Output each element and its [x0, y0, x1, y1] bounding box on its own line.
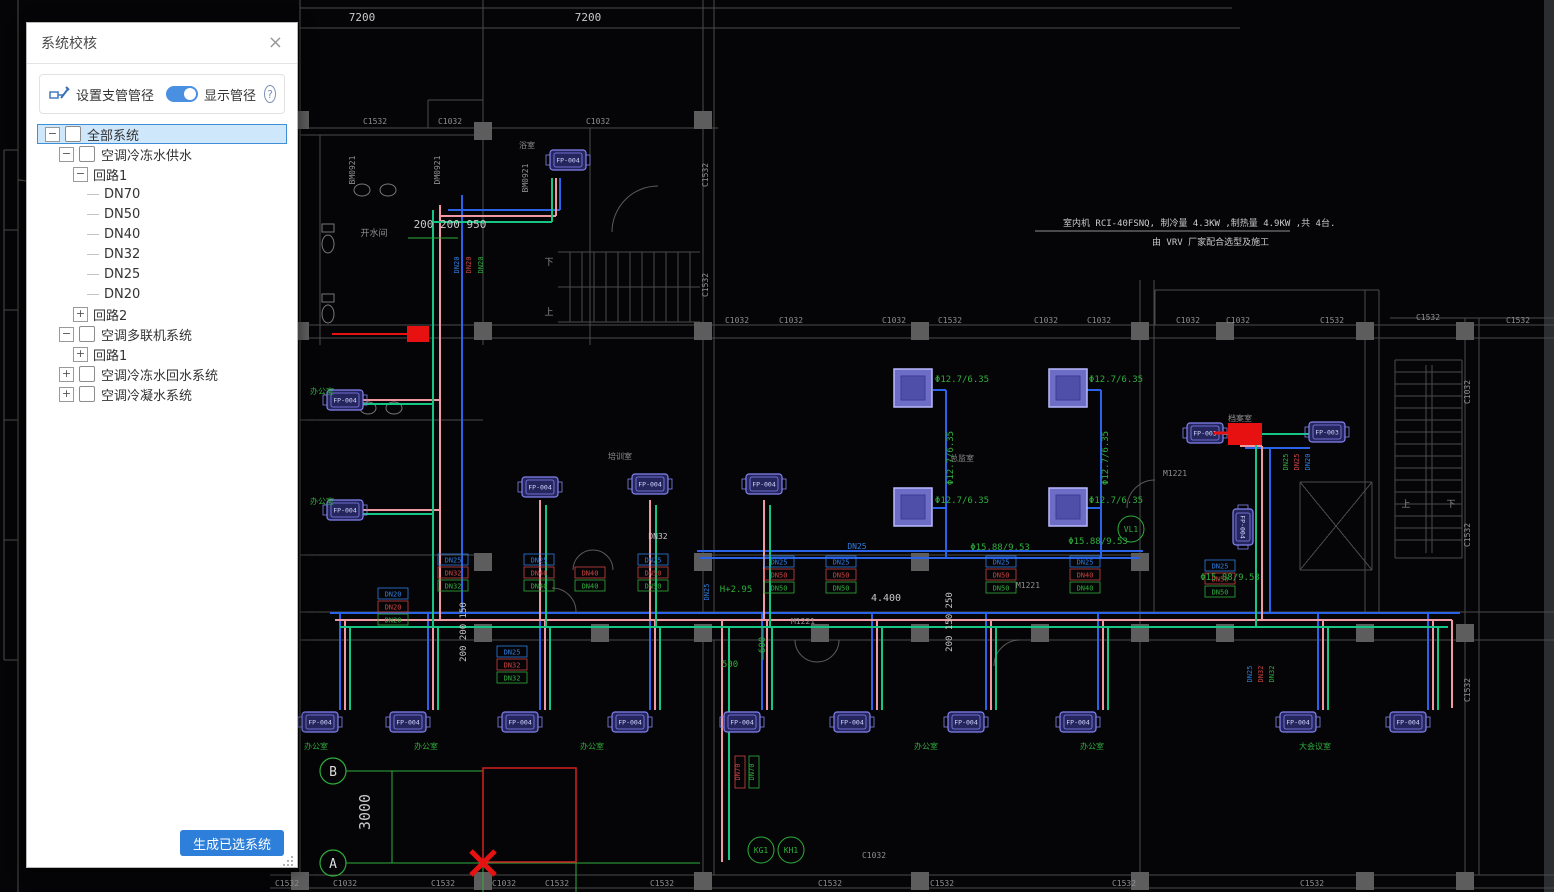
dn-label-vertical: DN32: [1257, 666, 1265, 683]
cad-label: Φ12.7/6.35: [1101, 431, 1111, 485]
fan-coil-unit-label: FP-004: [1239, 515, 1247, 539]
tree-item-空调冷冻水回水系统[interactable]: +空调冷冻水回水系统: [37, 364, 287, 384]
tree-item-label: 全部系统: [87, 125, 139, 144]
app-window: BAKG1KH1VL1FP-004FP-004FP-004FP-004FP-00…: [0, 0, 1554, 892]
cad-label: 200 150 250: [945, 592, 955, 652]
fan-coil-unit-label: FP-004: [396, 719, 420, 727]
cad-label: 办公室: [580, 741, 604, 751]
circle-tag-label: KH1: [784, 846, 799, 855]
cad-label: 下: [1446, 500, 1455, 510]
fan-coil-unit-label: FP-004: [308, 719, 332, 727]
cad-label: Φ15.88/9.53: [1068, 537, 1128, 547]
tree-item-DN70[interactable]: DN70: [37, 184, 287, 204]
fan-coil-unit-label: FP-003: [1315, 429, 1339, 437]
cad-label: C1032: [1176, 316, 1200, 325]
dn-label: DN40: [582, 570, 599, 578]
dn-label: DN40: [582, 583, 599, 591]
cad-label: C1032: [333, 879, 357, 888]
tree-checkbox[interactable]: [65, 126, 81, 142]
cassette-unit[interactable]: [1049, 369, 1087, 407]
cad-label: Φ12.7/6.35: [946, 431, 956, 485]
cad-label: C1532: [938, 316, 962, 325]
tree-connector: [87, 274, 99, 275]
cad-label: C1532: [650, 879, 674, 888]
cassette-unit[interactable]: [894, 488, 932, 526]
fan-coil-unit[interactable]: FP-004: [1386, 712, 1430, 732]
tree-item-回路1[interactable]: +回路1: [37, 344, 287, 364]
circle-tag-label: KG1: [754, 846, 769, 855]
fan-coil-unit-label: FP-004: [638, 481, 662, 489]
cad-label: 浴室: [519, 140, 535, 150]
dn-label: DN50: [645, 583, 662, 591]
cad-label: C1032: [882, 316, 906, 325]
cad-label: H+2.95: [720, 585, 753, 595]
show-diameter-label: 显示管径: [204, 85, 256, 104]
fan-coil-unit-label: FP-004: [840, 719, 864, 727]
dn-label-vertical: DN20: [465, 257, 473, 274]
fan-coil-unit-label: FP-004: [954, 719, 978, 727]
fan-coil-unit[interactable]: FP-004: [546, 150, 590, 170]
cad-label: 7200: [575, 11, 602, 24]
set-branch-diameter-icon[interactable]: [48, 85, 70, 103]
cad-label: C1032: [1463, 380, 1472, 404]
fan-coil-unit-label: FP-004: [333, 397, 357, 405]
tree-checkbox[interactable]: [79, 146, 95, 162]
tree-item-label: DN25: [104, 267, 140, 282]
cad-label: C1532: [701, 163, 710, 187]
fan-coil-unit-label: FP-004: [730, 719, 754, 727]
dn-label: DN32: [445, 570, 462, 578]
dn-label: DN50: [993, 572, 1010, 580]
dn-label: DN50: [1212, 589, 1229, 597]
expand-icon[interactable]: +: [73, 307, 88, 322]
tree-item-label: 空调多联机系统: [101, 325, 192, 344]
dn-label: DN25: [1077, 559, 1094, 567]
tree-item-DN40[interactable]: DN40: [37, 224, 287, 244]
dn-label: DN50: [771, 572, 788, 580]
dn-label: DN25: [531, 557, 548, 565]
cad-label: 上: [544, 307, 553, 318]
cad-label: C1032: [1226, 316, 1250, 325]
tree-checkbox[interactable]: [79, 326, 95, 342]
tree-item-label: 空调冷冻水回水系统: [101, 365, 218, 384]
cad-label: C1032: [725, 316, 749, 325]
tree-item-DN50[interactable]: DN50: [37, 204, 287, 224]
tree-connector: [87, 194, 99, 195]
cad-label: 4.400: [871, 593, 901, 604]
cad-label: C1032: [1034, 316, 1058, 325]
cad-label: C1032: [1087, 316, 1111, 325]
fan-coil-unit[interactable]: FP-004: [1276, 712, 1320, 732]
tree-item-label: 回路2: [93, 305, 127, 324]
cad-label: 室内机 RCI-40FSNQ, 制冷量 4.3KW ,制热量 4.9KW ,共 …: [1063, 217, 1335, 229]
cad-label: 办公室: [914, 741, 938, 751]
tree-checkbox[interactable]: [79, 366, 95, 382]
cad-label: Φ12.7/6.35: [935, 496, 989, 506]
fan-coil-unit-label: FP-004: [508, 719, 532, 727]
cad-label: 办公室: [1080, 741, 1104, 751]
panel-title: 系统校核: [41, 33, 97, 53]
dn-label: DN50: [833, 572, 850, 580]
cad-label: 培训室: [608, 451, 632, 461]
cad-label: DN25: [847, 542, 866, 551]
fan-coil-unit-label: FP-003: [1193, 430, 1217, 438]
cad-label: Φ15.88/9.53: [1200, 573, 1260, 583]
cad-label: 500: [722, 660, 738, 670]
cad-label: DN32: [648, 532, 667, 541]
tree-item-label: DN40: [104, 227, 140, 242]
cad-label: C1532: [701, 273, 710, 297]
dn-label: DN25: [833, 559, 850, 567]
fan-coil-unit[interactable]: FP-004: [720, 712, 764, 732]
cad-label: C1032: [862, 851, 886, 860]
cassette-unit[interactable]: [1049, 488, 1087, 526]
cad-label: 600: [758, 637, 768, 653]
cad-label: Φ12.7/6.35: [1089, 375, 1143, 385]
dn-label: DN40: [531, 583, 548, 591]
dn-label-vertical: DN25: [1282, 454, 1290, 471]
tree-item-DN25[interactable]: DN25: [37, 264, 287, 284]
cad-label: Φ12.7/6.35: [1089, 496, 1143, 506]
expand-icon[interactable]: +: [59, 367, 74, 382]
cad-label: C1532: [363, 117, 387, 126]
collapse-icon[interactable]: −: [45, 127, 60, 142]
tree-item-label: 回路1: [93, 345, 127, 364]
tree-item-空调冷凝水系统[interactable]: +空调冷凝水系统: [37, 384, 287, 404]
close-icon[interactable]: ×: [268, 34, 283, 52]
fan-coil-unit[interactable]: FP-004: [742, 474, 786, 494]
tree-connector: [87, 294, 99, 295]
dn-label-vertical: DN25: [1293, 454, 1301, 471]
show-diameter-toggle[interactable]: [166, 86, 198, 102]
cad-label: C1032: [586, 117, 610, 126]
fan-coil-unit-label: FP-004: [618, 719, 642, 727]
tree-connector: [87, 254, 99, 255]
dn-label: DN40: [531, 570, 548, 578]
grid-bubble-label: A: [329, 857, 337, 872]
fan-coil-unit-label: FP-004: [1286, 719, 1310, 727]
cad-label: C1532: [545, 879, 569, 888]
cad-label: M1221: [1016, 581, 1040, 590]
system-check-panel: 系统校核 × 设置支管管径 显示管径 ? −全部系统−空调冷冻水供水−回路1DN…: [26, 22, 298, 868]
tree-item-label: 空调冷冻水供水: [101, 145, 192, 164]
dn-label-vertical: DN20: [453, 257, 461, 274]
collapse-icon[interactable]: −: [59, 327, 74, 342]
dn-label: DN32: [504, 675, 521, 683]
cad-label: 上: [1401, 499, 1410, 510]
dn-label: DN50: [771, 585, 788, 593]
tree-item-DN20[interactable]: DN20: [37, 284, 287, 304]
fan-coil-unit-label: FP-004: [528, 484, 552, 492]
help-icon[interactable]: ?: [264, 85, 276, 103]
dn-label: DN32: [445, 583, 462, 591]
dn-label: DN32: [504, 662, 521, 670]
dn-label-vertical: DN70: [748, 764, 756, 781]
dn-label: DN20: [385, 591, 402, 599]
cad-label: C1532: [930, 879, 954, 888]
tree-item-全部系统[interactable]: −全部系统: [37, 124, 287, 144]
cad-label: 办公室: [414, 741, 438, 751]
cad-label: 3000: [356, 794, 374, 830]
toolbar: 设置支管管径 显示管径 ?: [39, 74, 285, 114]
tree-item-label: 空调冷凝水系统: [101, 385, 192, 404]
fan-coil-unit[interactable]: FP-004: [830, 712, 874, 732]
cad-label: C1032: [492, 879, 516, 888]
tree-item-空调多联机系统[interactable]: −空调多联机系统: [37, 324, 287, 344]
cad-label: 大会议室: [1299, 741, 1331, 751]
expand-icon[interactable]: +: [59, 387, 74, 402]
grid-bubble-label: B: [329, 765, 337, 780]
dn-label: DN50: [993, 585, 1010, 593]
fan-coil-unit[interactable]: FP-004: [498, 712, 542, 732]
dn-label-vertical: DN20: [477, 257, 485, 274]
cad-label: C1532: [1300, 879, 1324, 888]
tree-checkbox[interactable]: [79, 386, 95, 402]
cad-label: 办公室: [304, 741, 328, 751]
tree-item-回路2[interactable]: +回路2: [37, 304, 287, 324]
fan-coil-unit[interactable]: FP-004: [628, 474, 672, 494]
tree-item-DN32[interactable]: DN32: [37, 244, 287, 264]
fan-coil-unit[interactable]: FP-004: [1056, 712, 1100, 732]
cad-label: C1032: [779, 316, 803, 325]
tree-item-label: 回路1: [93, 165, 127, 184]
cad-label: C1532: [1506, 316, 1530, 325]
cad-label: C1532: [275, 879, 299, 888]
dn-label: DN50: [833, 585, 850, 593]
circle-tag-label: VL1: [1124, 525, 1139, 534]
dn-label: DN25: [445, 557, 462, 565]
cad-label: 200 200 150: [459, 602, 469, 662]
cad-label: C1532: [1463, 523, 1472, 547]
tree-item-空调冷冻水供水[interactable]: −空调冷冻水供水: [37, 144, 287, 164]
fan-coil-unit[interactable]: FP-004: [386, 712, 430, 732]
dn-label-vertical: DN70: [734, 764, 742, 781]
dn-label: DN25: [1212, 563, 1229, 571]
dn-label: DN25: [771, 559, 788, 567]
fan-coil-unit[interactable]: FP-004: [1233, 505, 1253, 549]
tree-item-回路1[interactable]: −回路1: [37, 164, 287, 184]
fan-coil-unit[interactable]: FP-004: [298, 712, 342, 732]
generate-selected-button[interactable]: 生成已选系统: [180, 830, 284, 856]
cad-label: DM0921: [433, 155, 442, 184]
dn-label-vertical: DN25: [1246, 666, 1254, 683]
cad-label: 档案室: [1228, 413, 1252, 423]
expand-icon[interactable]: +: [73, 347, 88, 362]
cad-label: C1532: [1463, 678, 1472, 702]
tree-connector: [87, 234, 99, 235]
cad-label: 下: [544, 258, 553, 268]
dn-label: DN40: [1077, 585, 1094, 593]
tree-item-label: DN50: [104, 207, 140, 222]
cad-label: C1532: [431, 879, 455, 888]
fan-coil-unit-label: FP-004: [556, 157, 580, 165]
cad-label: 7200: [349, 11, 376, 24]
tree-item-label: DN20: [104, 287, 140, 302]
dn-label: DN50: [645, 570, 662, 578]
cad-label: Φ15.88/9.53: [970, 543, 1030, 553]
dn-label-vertical: DN32: [1268, 666, 1276, 683]
cad-label: 由 VRV 厂家配合选型及施工: [1152, 236, 1269, 248]
cad-label: 开水间: [360, 227, 387, 239]
cad-label: BM0921: [348, 155, 357, 184]
cad-label: M1221: [791, 617, 815, 626]
dn-label: DN20: [385, 604, 402, 612]
fan-coil-unit-label: FP-004: [752, 481, 776, 489]
set-branch-diameter-label[interactable]: 设置支管管径: [76, 85, 154, 104]
cad-label: 200 200 950: [414, 218, 487, 231]
fan-coil-unit[interactable]: FP-004: [518, 477, 562, 497]
fan-coil-unit[interactable]: FP-003: [1305, 422, 1349, 442]
dn-label-vertical: DN25: [703, 584, 711, 601]
cad-label: Φ12.7/6.35: [935, 375, 989, 385]
dn-label: DN40: [1077, 572, 1094, 580]
fan-coil-unit[interactable]: FP-004: [608, 712, 652, 732]
toggle-knob: [184, 88, 196, 100]
resize-grip[interactable]: [282, 852, 294, 864]
fan-coil-unit-label: FP-004: [1396, 719, 1420, 727]
cad-label: M1221: [1163, 469, 1187, 478]
cad-label: 办公室: [310, 386, 334, 396]
tree-connector: [87, 214, 99, 215]
tree-item-label: DN32: [104, 247, 140, 262]
cad-label: C1532: [1416, 313, 1440, 322]
cad-label: C1532: [818, 879, 842, 888]
dn-label: DN25: [645, 557, 662, 565]
cad-label: C1532: [1320, 316, 1344, 325]
dn-label: DN25: [504, 649, 521, 657]
fan-coil-unit-label: FP-004: [1066, 719, 1090, 727]
cad-label: C1032: [438, 117, 462, 126]
cad-label: C1532: [1112, 879, 1136, 888]
cad-label: 办公室: [310, 496, 334, 506]
panel-header: 系统校核 ×: [27, 23, 297, 64]
collapse-icon[interactable]: −: [59, 147, 74, 162]
cassette-unit[interactable]: [894, 369, 932, 407]
collapse-icon[interactable]: −: [73, 167, 88, 182]
cad-label: BM0921: [521, 163, 530, 192]
fan-coil-unit[interactable]: FP-004: [944, 712, 988, 732]
fan-coil-unit-label: FP-004: [333, 507, 357, 515]
dn-label: DN25: [993, 559, 1010, 567]
system-tree: −全部系统−空调冷冻水供水−回路1DN70DN50DN40DN32DN25DN2…: [27, 124, 297, 404]
dn-label-vertical: DN20: [1304, 454, 1312, 471]
tree-item-label: DN70: [104, 187, 140, 202]
dn-label: DN20: [385, 617, 402, 625]
